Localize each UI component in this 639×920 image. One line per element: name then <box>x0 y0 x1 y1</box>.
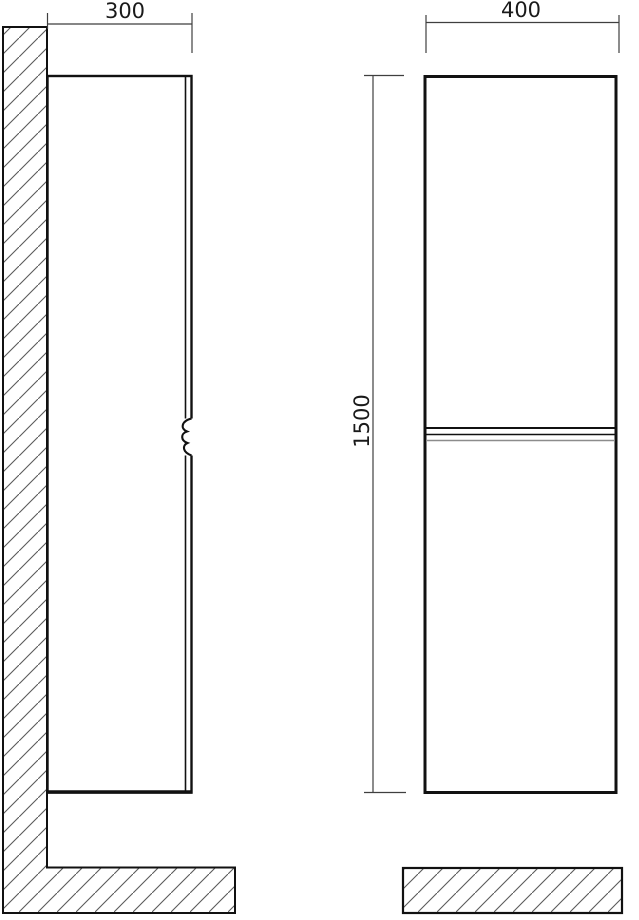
cabinet-technical-drawing: 300 400 1500 <box>0 0 639 920</box>
dimension-width: 400 <box>426 0 619 53</box>
dim-depth-label: 300 <box>105 0 145 23</box>
side-view-body <box>48 76 192 793</box>
dimension-depth: 300 <box>47 0 192 53</box>
floor-slab-front <box>403 868 622 913</box>
dim-height-label: 1500 <box>350 394 374 447</box>
side-view <box>47 76 194 793</box>
dim-width-label: 400 <box>501 0 541 22</box>
dimension-height: 1500 <box>350 76 406 793</box>
object-lines <box>3 27 622 913</box>
front-view <box>425 77 616 793</box>
technical-drawing-page: 300 400 1500 <box>0 0 639 920</box>
